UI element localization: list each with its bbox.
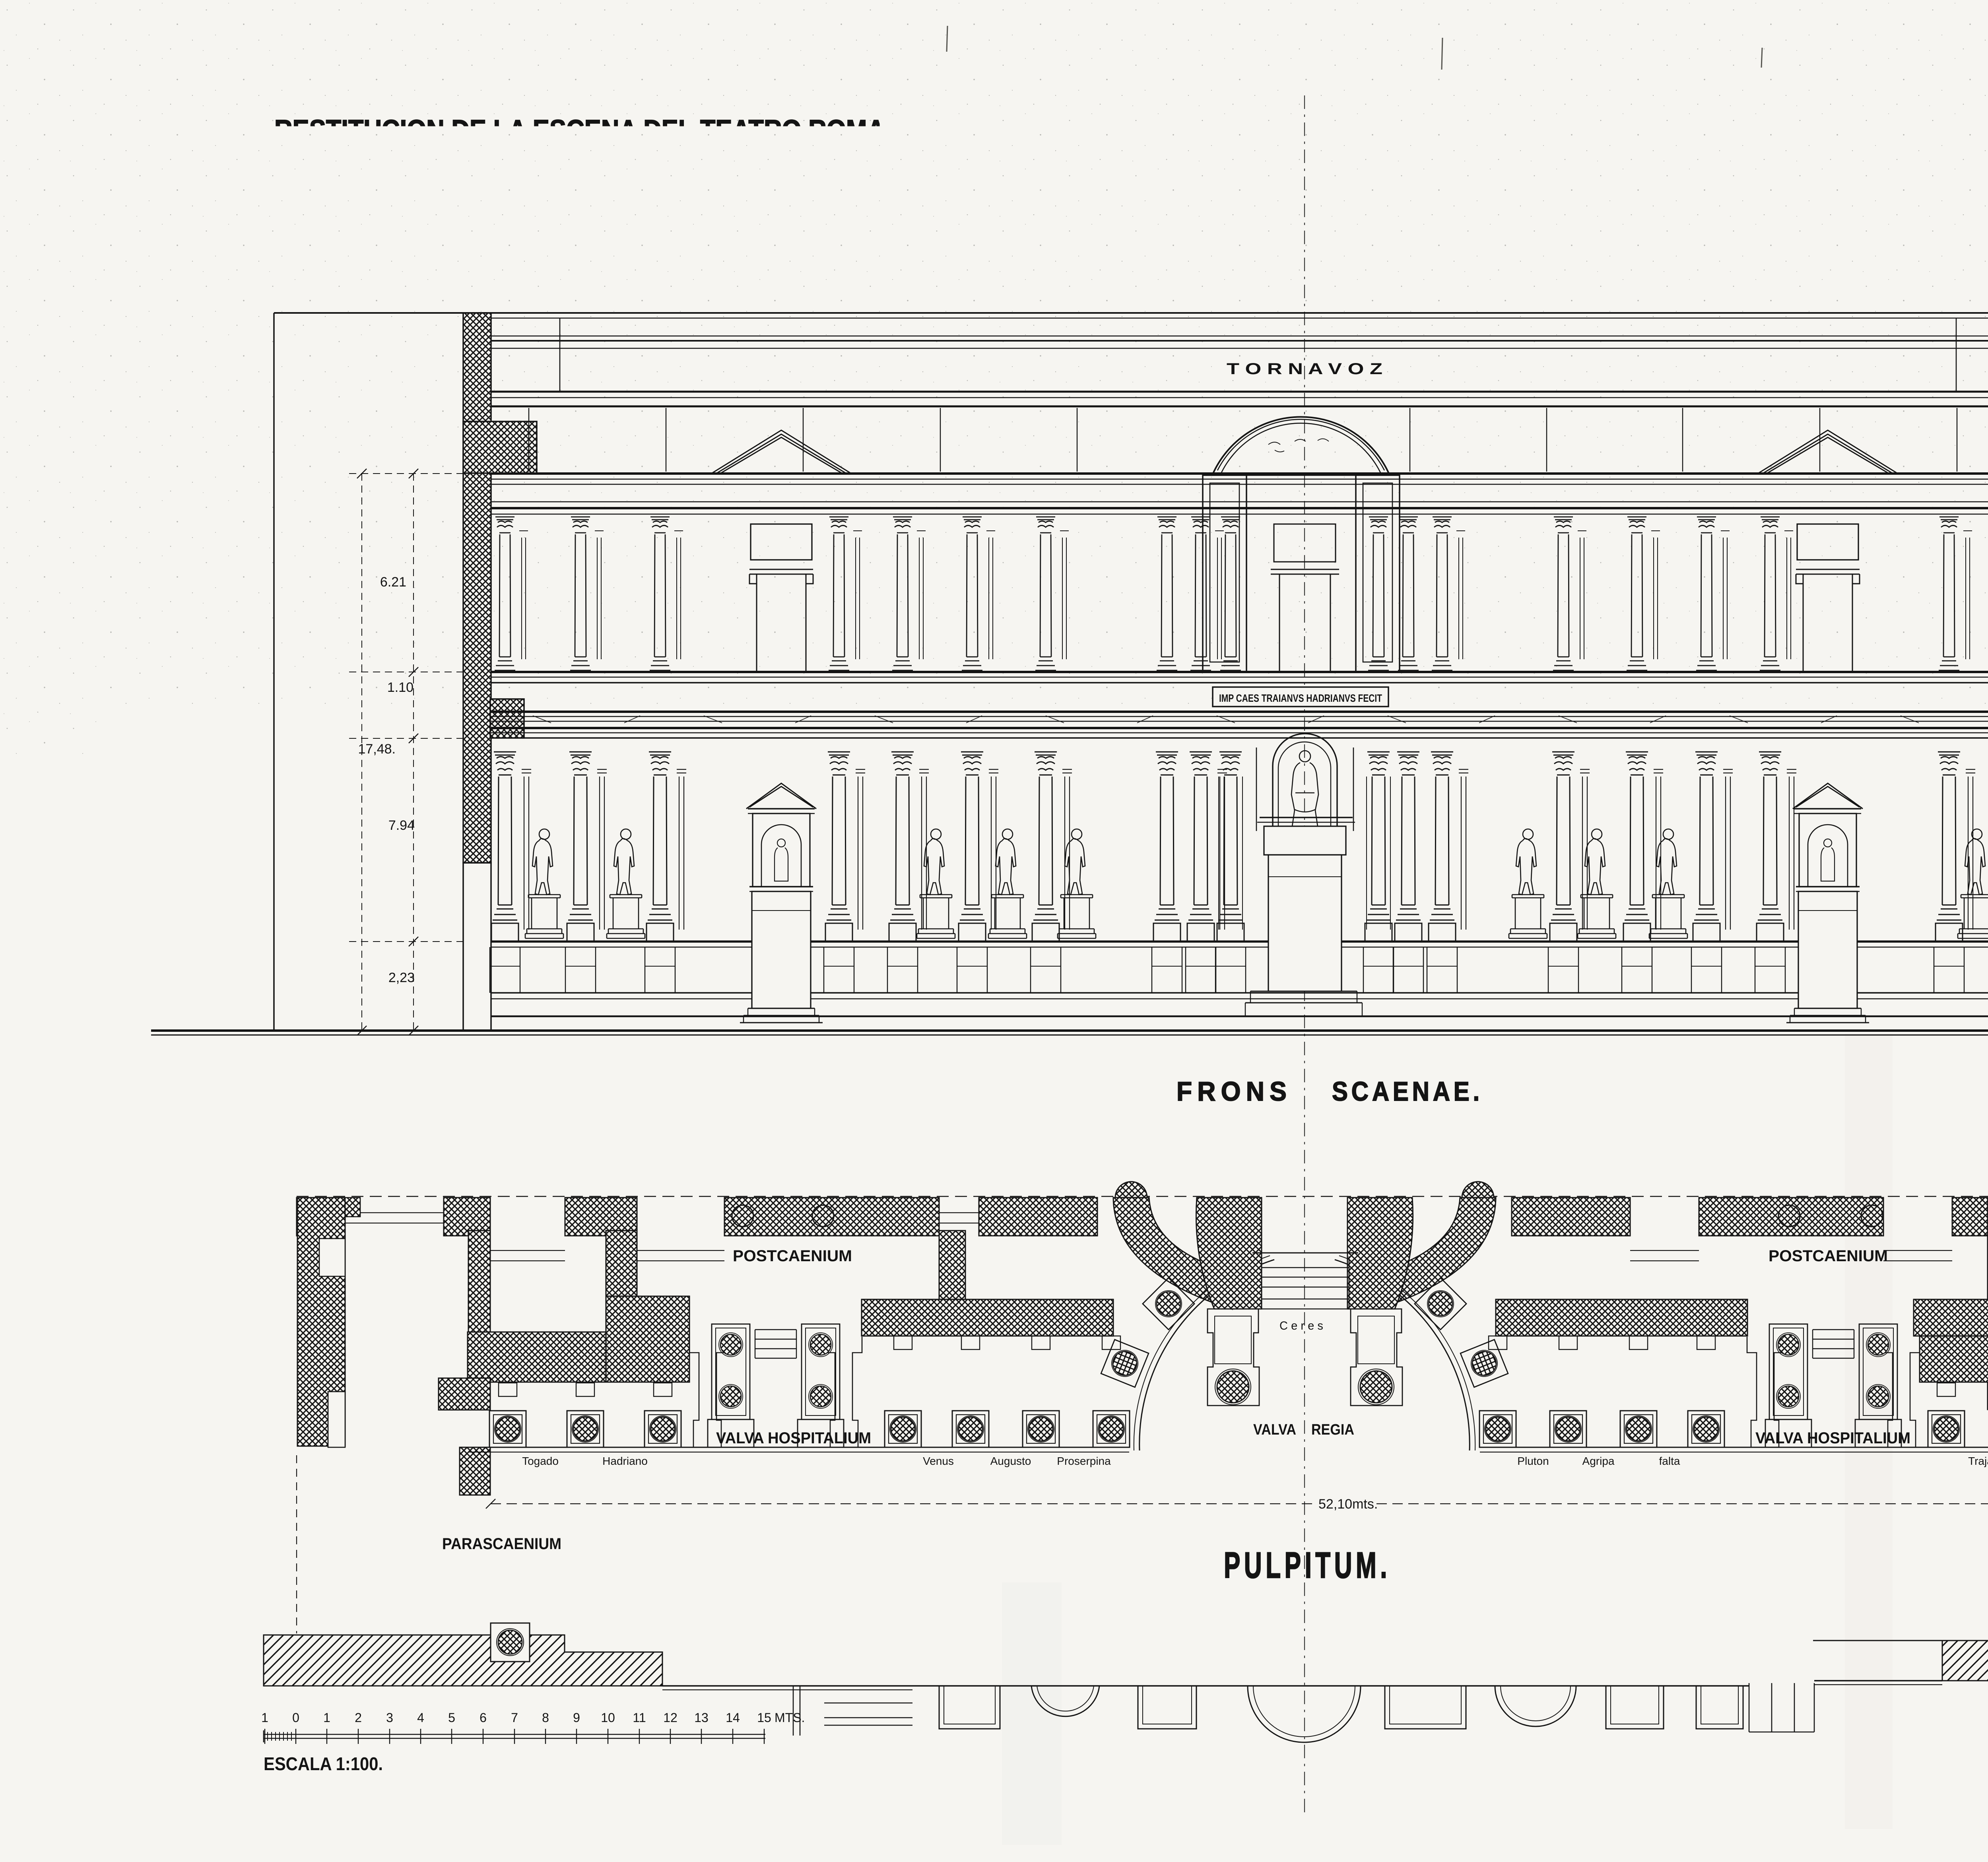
svg-text:VALVA HOSPITALIUM: VALVA HOSPITALIUM	[716, 1429, 871, 1447]
svg-text:11: 11	[633, 1711, 646, 1725]
svg-text:7: 7	[511, 1711, 518, 1725]
svg-text:4: 4	[417, 1711, 424, 1725]
svg-text:POSTCAENIUM: POSTCAENIUM	[1769, 1247, 1888, 1265]
svg-text:MTS.: MTS.	[775, 1711, 805, 1725]
svg-text:0: 0	[292, 1711, 299, 1725]
svg-text:Trajano: Trajano	[1968, 1455, 1988, 1467]
svg-text:VALVA: VALVA	[1253, 1421, 1296, 1438]
svg-text:1: 1	[323, 1711, 330, 1725]
svg-text:13: 13	[694, 1711, 709, 1725]
svg-text:52,10mts.: 52,10mts.	[1318, 1497, 1378, 1512]
svg-text:PULPITUM.: PULPITUM.	[1224, 1545, 1391, 1586]
svg-text:3: 3	[386, 1711, 393, 1725]
svg-text:5: 5	[448, 1711, 455, 1725]
svg-text:1: 1	[261, 1711, 268, 1725]
svg-text:Venus: Venus	[923, 1455, 954, 1467]
svg-text:6.21: 6.21	[380, 575, 406, 590]
svg-text:Pluton: Pluton	[1517, 1455, 1549, 1467]
svg-text:15: 15	[757, 1711, 771, 1725]
svg-text:C e r e s: C e r e s	[1279, 1319, 1323, 1332]
svg-text:9: 9	[573, 1711, 580, 1725]
svg-text:17,48.: 17,48.	[358, 742, 396, 757]
svg-text:2: 2	[355, 1711, 362, 1725]
svg-text:Togado: Togado	[522, 1455, 559, 1467]
svg-text:12: 12	[663, 1711, 678, 1725]
svg-text:8: 8	[542, 1711, 549, 1725]
svg-text:ESCALA 1:100.: ESCALA 1:100.	[264, 1753, 383, 1774]
svg-text:6: 6	[480, 1711, 487, 1725]
svg-text:falta: falta	[1659, 1455, 1680, 1467]
svg-text:2,23: 2,23	[388, 970, 415, 985]
svg-text:Augusto: Augusto	[990, 1455, 1031, 1467]
svg-text:FRONS: FRONS	[1176, 1076, 1292, 1107]
svg-text:Hadriano: Hadriano	[602, 1455, 648, 1467]
svg-text:IMP CAES TRAIANVS HADRIANVS FE: IMP CAES TRAIANVS HADRIANVS FECIT	[1219, 692, 1382, 704]
svg-text:REGIA: REGIA	[1311, 1421, 1354, 1438]
svg-text:PARASCAENIUM: PARASCAENIUM	[442, 1535, 561, 1553]
svg-text:Agripa: Agripa	[1582, 1455, 1615, 1467]
svg-text:POSTCAENIUM: POSTCAENIUM	[733, 1247, 852, 1265]
svg-text:SCAENAE.: SCAENAE.	[1332, 1076, 1483, 1107]
svg-text:10: 10	[601, 1711, 615, 1725]
svg-text:14: 14	[726, 1711, 740, 1725]
svg-text:RESTITUCION DE LA ESCENA DEL T: RESTITUCION DE LA ESCENA DEL TEATRO ROMA…	[274, 115, 1077, 146]
svg-text:7.94: 7.94	[388, 818, 415, 833]
svg-text:VALVA HOSPITALIUM: VALVA HOSPITALIUM	[1755, 1429, 1910, 1447]
svg-text:T O R N A V O Z: T O R N A V O Z	[1227, 360, 1382, 378]
svg-text:1.10: 1.10	[387, 680, 414, 695]
svg-text:Proserpina: Proserpina	[1057, 1455, 1111, 1467]
